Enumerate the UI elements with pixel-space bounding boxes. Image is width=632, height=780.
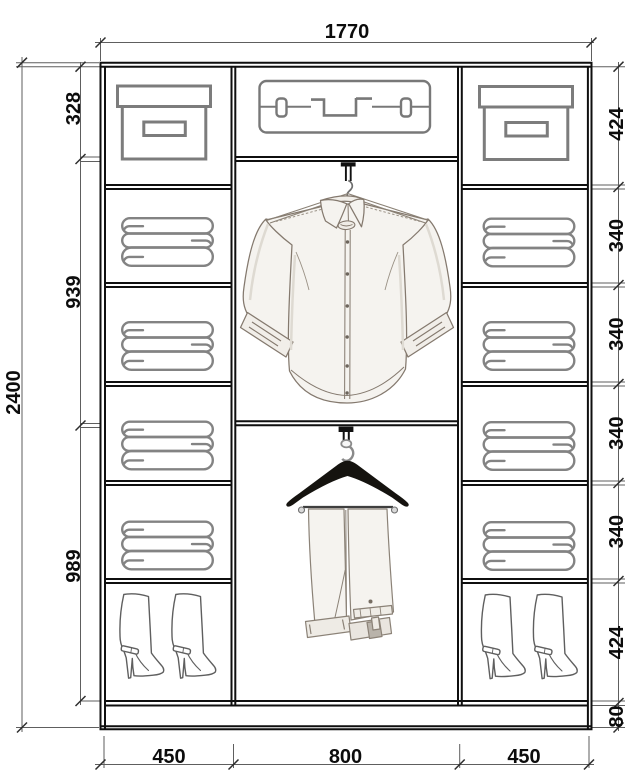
svg-text:340: 340 <box>606 317 628 350</box>
svg-text:328: 328 <box>63 92 85 125</box>
svg-text:989: 989 <box>63 549 85 582</box>
svg-text:340: 340 <box>606 515 628 548</box>
svg-text:939: 939 <box>63 275 85 308</box>
svg-text:424: 424 <box>606 625 628 659</box>
svg-text:450: 450 <box>152 746 185 768</box>
svg-text:424: 424 <box>606 106 628 140</box>
svg-text:800: 800 <box>329 746 362 768</box>
svg-text:80: 80 <box>606 705 628 727</box>
svg-text:340: 340 <box>606 416 628 449</box>
svg-text:2400: 2400 <box>3 370 25 415</box>
svg-text:450: 450 <box>507 746 540 768</box>
svg-text:340: 340 <box>606 219 628 252</box>
svg-text:1770: 1770 <box>325 21 370 43</box>
